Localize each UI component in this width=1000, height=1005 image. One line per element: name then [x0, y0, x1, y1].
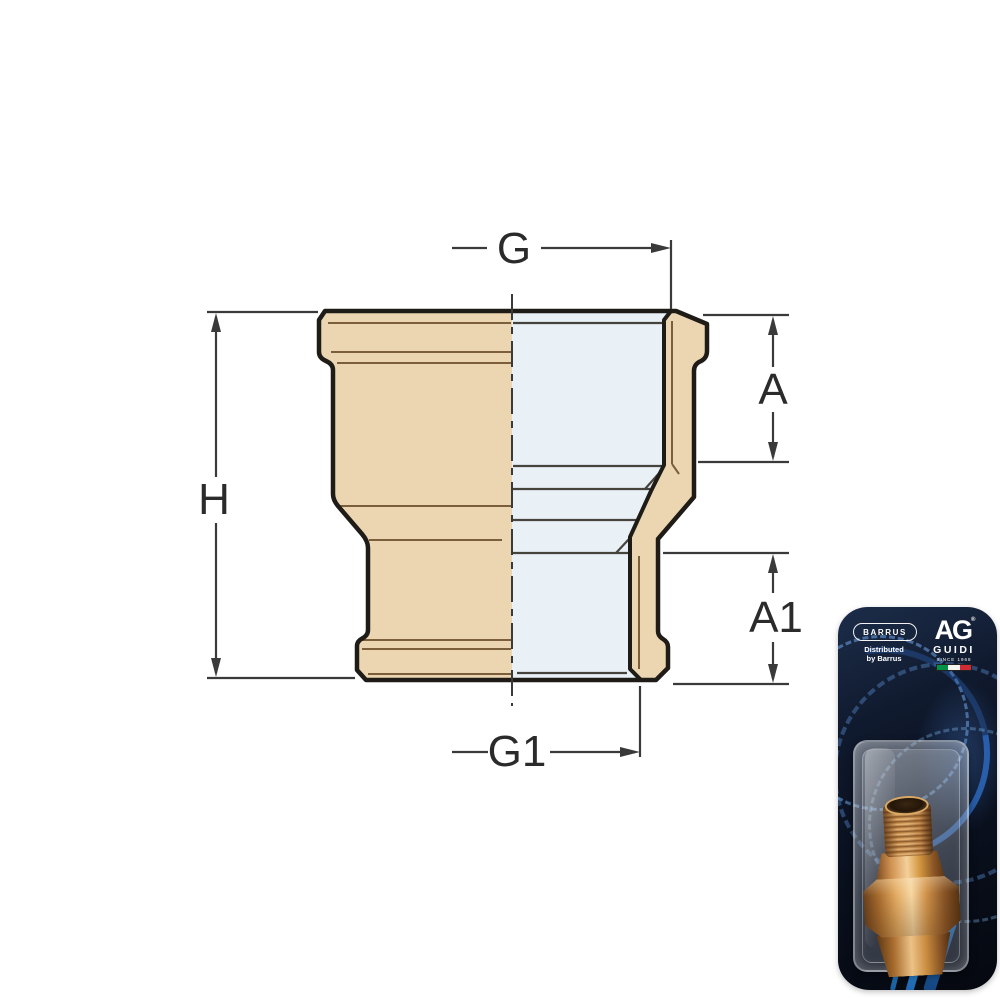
flag-white	[948, 665, 959, 670]
flag-green	[937, 665, 948, 670]
barrus-brand-badge: BARRUS	[853, 623, 917, 641]
guidi-name: GUIDI	[926, 644, 982, 656]
distributor-text: Distributed by Barrus	[848, 645, 920, 664]
guidi-logo: AG® GUIDI SINCE 1968	[926, 617, 982, 671]
guidi-monogram: AG®	[926, 617, 982, 644]
dimension-label-a1: A1	[749, 593, 803, 642]
dimension-label-g1: G1	[488, 727, 547, 776]
clear-blister	[853, 740, 969, 972]
registered-mark: ®	[971, 617, 973, 623]
distributor-line1: Distributed	[848, 645, 920, 654]
dimension-label-h: H	[198, 475, 230, 524]
fitting-lower-hex	[877, 932, 953, 978]
dimension-label-a: A	[758, 365, 788, 414]
brass-fitting-photo	[858, 796, 963, 979]
italian-flag	[936, 664, 972, 671]
guidi-tagline: SINCE 1968	[926, 657, 982, 662]
guidi-monogram-text: AG	[935, 615, 972, 645]
distributor-line2: by Barrus	[848, 654, 920, 663]
product-blister-pack: BARRUS Distributed by Barrus AG® GUIDI S…	[838, 607, 997, 990]
dimension-label-g: G	[497, 224, 531, 273]
barrus-brand-label: BARRUS	[863, 628, 907, 637]
fitting-left-external-body	[319, 311, 512, 680]
fitting-union-nut	[862, 874, 961, 939]
flag-red	[960, 665, 971, 670]
